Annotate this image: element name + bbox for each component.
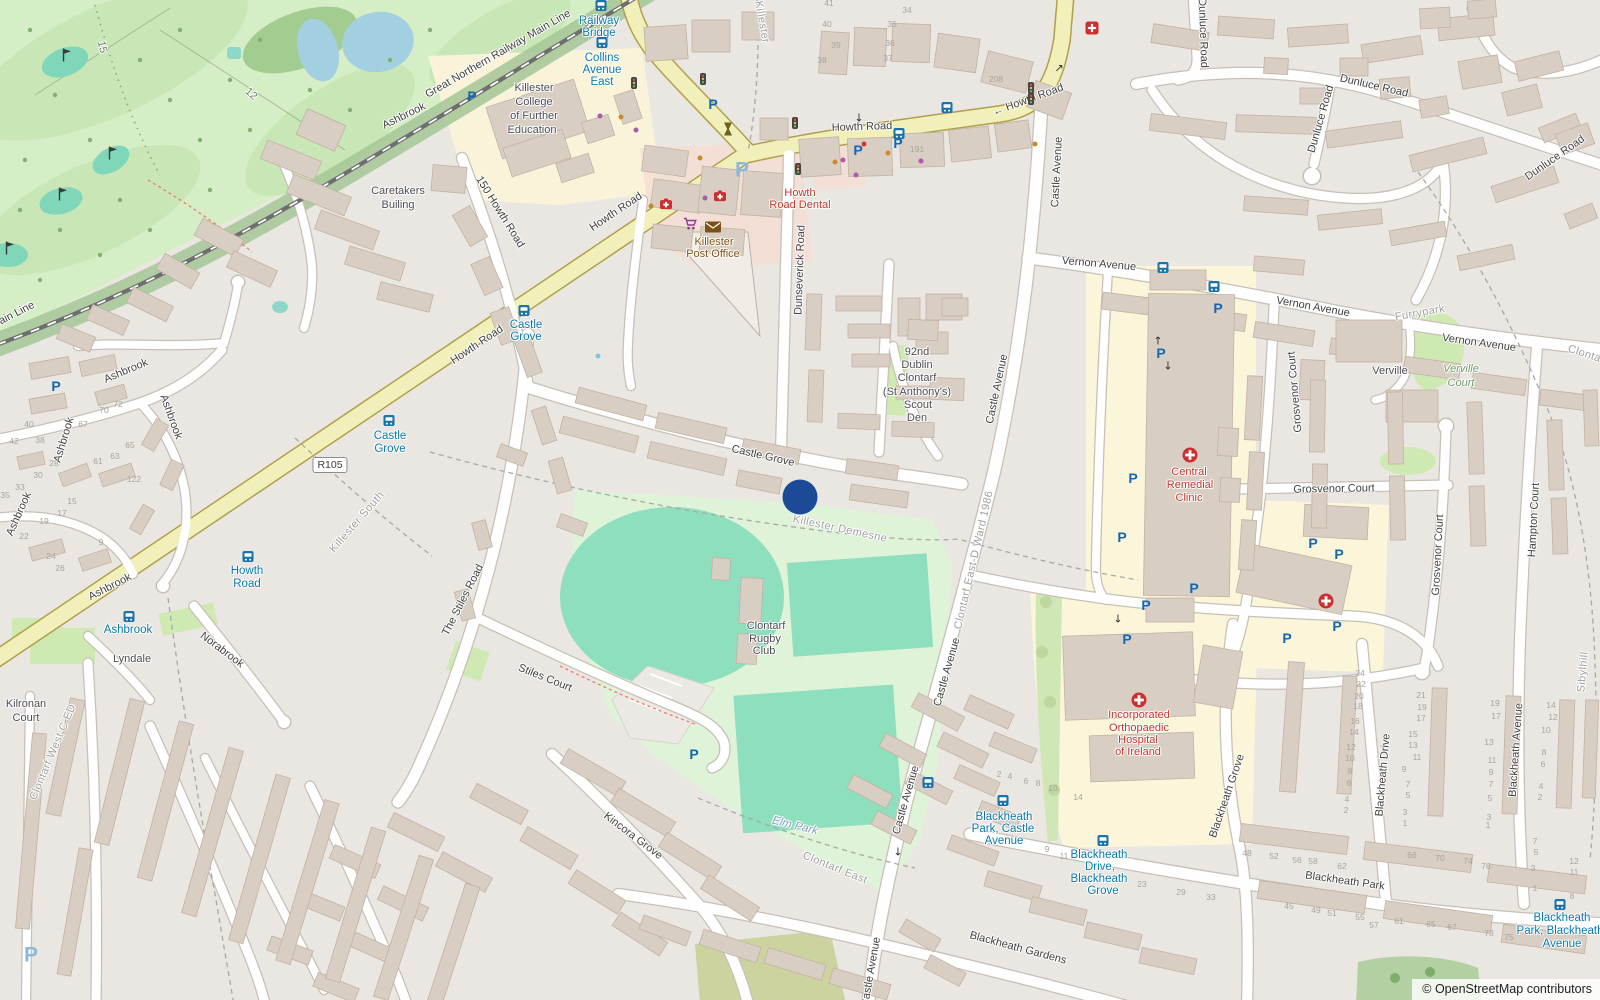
transit-stop-label: Avenue bbox=[985, 835, 1024, 847]
medical-label: Clinic bbox=[1176, 492, 1203, 504]
house-number: 17 bbox=[1416, 713, 1425, 723]
parking-icon: P bbox=[1117, 530, 1126, 544]
medical-label: Central bbox=[1171, 466, 1206, 478]
post-office-icon bbox=[705, 222, 721, 233]
street-label: Dunluce Road bbox=[1196, 0, 1210, 68]
house-number: 8 bbox=[1348, 766, 1353, 776]
house-number: 37 bbox=[883, 53, 892, 63]
house-number: 8 bbox=[1036, 778, 1041, 788]
house-number: 73 bbox=[1484, 928, 1493, 938]
house-number: 36 bbox=[885, 38, 894, 48]
bus-stop-icon bbox=[1158, 262, 1169, 274]
transit-stop-label: Blackheath bbox=[1071, 849, 1128, 861]
traffic-signal-icon bbox=[1028, 82, 1034, 94]
transit-stop-label: Avenue bbox=[583, 64, 622, 76]
house-number: 63 bbox=[110, 451, 119, 461]
house-number: 10 bbox=[1345, 753, 1354, 763]
place-label: Dublin bbox=[901, 359, 932, 371]
bus-stop-icon bbox=[998, 795, 1009, 807]
house-number: 22 bbox=[1356, 679, 1365, 689]
medical-label: Incorporated bbox=[1108, 709, 1170, 721]
house-number: 58 bbox=[1308, 856, 1317, 866]
hospital-cross-icon bbox=[1131, 692, 1147, 708]
boundary-label: Sibylhill bbox=[1575, 651, 1591, 693]
transit-stop-label: Park, Blackheath bbox=[1517, 925, 1600, 937]
street-label: Dunluce Road bbox=[1523, 133, 1587, 183]
house-number: 35 bbox=[0, 490, 9, 500]
poi-dot-icon bbox=[619, 115, 624, 120]
place-label: College bbox=[515, 96, 552, 108]
boundary-label: Clontarf East bbox=[801, 850, 869, 887]
boundary-label: Clontarf East-D Ward 1986 bbox=[952, 490, 996, 631]
street-label: Blackheath Park bbox=[1305, 869, 1386, 892]
house-number: 7 bbox=[1533, 836, 1538, 846]
house-number: 1 bbox=[1486, 820, 1491, 830]
poi-dot-icon bbox=[634, 128, 639, 133]
house-number: 70 bbox=[1435, 853, 1444, 863]
first-aid-icon bbox=[714, 191, 726, 202]
street-label: Grosvenor Court bbox=[1293, 482, 1375, 495]
house-number: 33 bbox=[1206, 892, 1215, 902]
place-label: Caretakers bbox=[371, 185, 425, 197]
supermarket-icon bbox=[683, 218, 697, 231]
oneway-arrow-icon: ↓ bbox=[1163, 361, 1172, 372]
street-label: Ashbrook bbox=[380, 100, 427, 131]
poi-dot-icon bbox=[833, 160, 838, 165]
street-label: Ashbrook bbox=[102, 356, 149, 385]
house-number: 30 bbox=[33, 470, 42, 480]
street-label: Howth Road bbox=[588, 190, 645, 234]
poi-dot-icon bbox=[886, 151, 891, 156]
boundary-label: Killester Demesne bbox=[792, 513, 888, 545]
parking-area-icon: P bbox=[24, 945, 38, 966]
transit-stop-label: Castle bbox=[374, 430, 407, 442]
house-number: 15 bbox=[1408, 729, 1417, 739]
transit-stop-label: Blackheath bbox=[1071, 873, 1128, 885]
house-number: 13 bbox=[1484, 737, 1493, 747]
house-number: 24 bbox=[46, 551, 55, 561]
poi-dot-icon bbox=[854, 173, 859, 178]
house-number: 2 bbox=[1538, 792, 1543, 802]
house-number: 67 bbox=[78, 419, 87, 429]
oneway-arrow-icon: ↓ bbox=[893, 847, 902, 858]
bus-stop-icon bbox=[1555, 899, 1566, 911]
attribution-copyright: © bbox=[1422, 982, 1431, 996]
house-number: 14 bbox=[1546, 700, 1555, 710]
street-label: Howth Road bbox=[449, 323, 506, 367]
street-label: Grosvenor Court bbox=[1430, 514, 1446, 596]
park-label: Elm Park bbox=[771, 815, 819, 838]
parking-icon: P bbox=[689, 747, 698, 761]
house-number: 40 bbox=[822, 19, 831, 29]
transit-stop-label: Drive, bbox=[1085, 861, 1115, 873]
place-label: Kilronan bbox=[6, 698, 46, 710]
house-number: 65 bbox=[1426, 919, 1435, 929]
house-number: 4 bbox=[1539, 781, 1544, 791]
medical-label: Howth bbox=[784, 187, 815, 199]
house-number: 10 bbox=[1541, 725, 1550, 735]
house-number: 38 bbox=[35, 435, 44, 445]
house-number: 62 bbox=[1337, 861, 1346, 871]
house-number: 4 bbox=[1008, 771, 1013, 781]
house-number: 42 bbox=[9, 436, 18, 446]
place-label: Verville bbox=[1372, 365, 1407, 377]
hospital-cross-icon bbox=[1182, 447, 1198, 463]
house-number: 66 bbox=[1407, 850, 1416, 860]
house-number: 9 bbox=[1489, 767, 1494, 777]
parking-icon: P bbox=[1213, 301, 1222, 315]
house-number: 3 bbox=[1403, 807, 1408, 817]
poi-dot-icon bbox=[1033, 142, 1038, 147]
oneway-arrow-icon: ↓ bbox=[854, 113, 863, 124]
boundary-label: Clontarf West C ED bbox=[27, 702, 78, 801]
house-number: 38 bbox=[817, 55, 826, 65]
house-number: 70 bbox=[99, 405, 108, 415]
traffic-signal-icon bbox=[795, 163, 801, 175]
street-label: Kincora Grove bbox=[601, 810, 664, 862]
house-number: 56 bbox=[1292, 855, 1301, 865]
house-number: 65 bbox=[125, 440, 134, 450]
street-label: Hampton Court bbox=[1526, 482, 1542, 557]
street-label: Dunluce Road bbox=[1306, 84, 1337, 154]
house-number: 191 bbox=[910, 144, 924, 154]
transit-stop-label: Railway bbox=[579, 15, 619, 27]
street-label: Blackheath Grove bbox=[1207, 753, 1247, 840]
traffic-signal-icon bbox=[700, 73, 706, 85]
street-label: Castle Grove bbox=[730, 443, 795, 469]
place-label: Clontarf bbox=[898, 372, 937, 384]
house-number: 41 bbox=[824, 0, 833, 8]
bus-stop-icon bbox=[243, 551, 254, 563]
house-number: 10 bbox=[1048, 783, 1057, 793]
poi-dot-icon bbox=[919, 159, 924, 164]
street-label: Vernon Avenue bbox=[1061, 255, 1136, 273]
house-number: 34 bbox=[902, 5, 911, 15]
street-label: Howth Road bbox=[832, 120, 893, 134]
house-number: 22 bbox=[19, 531, 28, 541]
poi-dot-icon bbox=[862, 142, 867, 147]
house-number: 12 bbox=[1548, 712, 1557, 722]
house-number: 1 bbox=[1403, 818, 1408, 828]
house-number: 12 bbox=[1569, 856, 1578, 866]
parking-icon: P bbox=[1282, 631, 1291, 645]
medical-label: Hospital bbox=[1118, 734, 1158, 746]
boundary-label: Furrypark bbox=[1394, 303, 1446, 324]
house-number: 17 bbox=[57, 508, 66, 518]
pharmacy-icon bbox=[1086, 22, 1099, 35]
transit-stop-label: Grove bbox=[1087, 885, 1118, 897]
oneway-arrow-icon: ↗ bbox=[1054, 63, 1063, 74]
transit-stop-label: Grove bbox=[374, 443, 405, 455]
first-aid-icon bbox=[660, 199, 672, 210]
house-number: 3 bbox=[1487, 812, 1492, 822]
house-number: 75 bbox=[1504, 932, 1513, 942]
place-label: Court bbox=[13, 712, 40, 724]
street-label: Great Northern Railway Main Line bbox=[423, 7, 572, 100]
house-number: 1 bbox=[1533, 883, 1538, 893]
boundary-label: Clontarf bbox=[1566, 343, 1600, 367]
house-number: 11 bbox=[1488, 755, 1497, 765]
place-label: of Further bbox=[510, 110, 558, 122]
house-number: 61 bbox=[1394, 916, 1403, 926]
parking-icon: P bbox=[1332, 619, 1341, 633]
transit-stop-label: Collins bbox=[585, 52, 620, 64]
house-number: 19 bbox=[1417, 702, 1426, 712]
medical-label: of Ireland bbox=[1115, 746, 1161, 758]
place-label: Clontarf bbox=[747, 620, 786, 632]
bus-stop-icon bbox=[384, 415, 395, 427]
parking-icon: P bbox=[51, 379, 60, 393]
transit-stop-label: Bridge bbox=[582, 27, 615, 39]
house-number: 21 bbox=[1416, 690, 1425, 700]
parking-icon: P bbox=[467, 89, 476, 103]
parking-icon: P bbox=[893, 136, 902, 150]
bus-stop-icon bbox=[124, 611, 135, 623]
street-label: Vernon Avenue bbox=[1275, 295, 1350, 320]
house-number: 9 bbox=[99, 537, 104, 547]
house-number: 7 bbox=[1489, 779, 1494, 789]
medical-label: Remedial bbox=[1167, 479, 1213, 491]
house-number: 5 bbox=[1488, 793, 1493, 803]
parking-icon: P bbox=[708, 97, 717, 111]
house-number: 16 bbox=[1350, 716, 1359, 726]
house-number: 26 bbox=[55, 563, 64, 573]
hospital-cross-icon bbox=[1318, 593, 1334, 609]
street-label: Grosvenor Court bbox=[1285, 351, 1304, 433]
street-label: Ashbrook bbox=[87, 571, 134, 603]
house-number: 19 bbox=[1490, 698, 1499, 708]
transit-stop-label: Grove bbox=[510, 331, 541, 343]
house-number: 18 bbox=[1353, 701, 1362, 711]
transit-stop-label: Blackheath bbox=[976, 811, 1033, 823]
house-number: 67 bbox=[1447, 922, 1456, 932]
poi-dot-icon bbox=[698, 156, 703, 161]
house-number: 74 bbox=[1463, 856, 1472, 866]
house-number: 5 bbox=[1406, 790, 1411, 800]
oneway-arrow-icon: ↓ bbox=[1113, 614, 1122, 625]
house-number: 52 bbox=[1269, 851, 1278, 861]
transit-stop-label: Castle bbox=[510, 319, 543, 331]
transit-stop-label: Blackheath bbox=[1534, 912, 1591, 924]
house-number: 14 bbox=[1349, 727, 1358, 737]
house-number: 5 bbox=[1534, 847, 1539, 857]
house-number: 7 bbox=[1406, 779, 1411, 789]
house-number: 17 bbox=[1491, 711, 1500, 721]
street-label: 150 Howth Road bbox=[473, 174, 527, 250]
bus-stop-icon bbox=[519, 305, 530, 317]
house-number: 61 bbox=[93, 456, 102, 466]
green-area-label: Court bbox=[1448, 377, 1475, 389]
attribution-suffix: contributors bbox=[1527, 982, 1592, 996]
house-number: 49 bbox=[1311, 905, 1320, 915]
parking-icon: P bbox=[1141, 598, 1150, 612]
house-number: 72 bbox=[113, 399, 122, 409]
house-number: 8 bbox=[1542, 747, 1547, 757]
house-number: 28 bbox=[49, 458, 58, 468]
street-label: Great Northern Railway Main Line bbox=[0, 299, 37, 385]
golf-hole-number: 15 bbox=[95, 40, 109, 54]
street-label: Castle Avenue bbox=[931, 636, 962, 707]
house-number: 13 bbox=[1408, 740, 1417, 750]
street-label: Castle Avenue bbox=[859, 936, 883, 1000]
poi-dot-icon bbox=[598, 114, 603, 119]
street-label: ← Howth Road bbox=[991, 82, 1065, 119]
house-number: 11 bbox=[1413, 752, 1422, 762]
house-number: 6 bbox=[1347, 778, 1352, 788]
house-number: 3 bbox=[1531, 863, 1536, 873]
house-number: 11 bbox=[1570, 867, 1579, 877]
house-number: 9 bbox=[1045, 844, 1050, 854]
traffic-signal-icon bbox=[631, 77, 637, 89]
house-number: 24 bbox=[1355, 668, 1364, 678]
house-number: 14 bbox=[1073, 792, 1082, 802]
post-office-label: Post Office bbox=[686, 248, 740, 260]
golf-flag-icon bbox=[108, 147, 118, 160]
golf-hole-number: 12 bbox=[242, 85, 259, 102]
place-label: Scout bbox=[904, 399, 932, 411]
transit-stop-label: Howth bbox=[231, 565, 264, 577]
street-label: Blackheath Avenue bbox=[1507, 703, 1526, 798]
house-number: 2 bbox=[997, 769, 1002, 779]
house-number: 8 bbox=[1570, 891, 1575, 901]
place-label: Rugby bbox=[749, 633, 781, 645]
house-number: 4 bbox=[1345, 794, 1350, 804]
bus-stop-icon bbox=[597, 37, 608, 49]
oneway-arrow-icon: ↑ bbox=[1153, 336, 1162, 347]
medical-label: Road Dental bbox=[769, 199, 830, 211]
bus-stop-icon bbox=[942, 102, 953, 114]
house-number: 57 bbox=[1369, 920, 1378, 930]
house-number: 20 bbox=[1354, 691, 1363, 701]
route-shield: R105 bbox=[312, 457, 347, 473]
transit-stop-label: Ashbrook bbox=[104, 624, 153, 636]
traffic-signal-icon bbox=[1028, 93, 1034, 105]
house-number: 23 bbox=[1137, 879, 1146, 889]
street-label: Blackheath Drive bbox=[1373, 733, 1392, 817]
house-number: 48 bbox=[1242, 848, 1251, 858]
street-label: Castle Avenue bbox=[1049, 136, 1065, 207]
house-number: 6 bbox=[1024, 776, 1029, 786]
street-label: Ashbrook bbox=[51, 416, 76, 464]
map-canvas[interactable]: Great Northern Railway Main LineGreat No… bbox=[0, 0, 1600, 1000]
golf-flag-icon bbox=[62, 49, 72, 62]
boundary-label: Killester South bbox=[327, 489, 387, 555]
street-label: Dunseverick Road bbox=[792, 225, 807, 315]
poi-dot-icon bbox=[841, 158, 846, 163]
post-office-label: Killester bbox=[694, 236, 733, 248]
golf-flag-icon bbox=[5, 242, 15, 255]
bus-stop-icon bbox=[1209, 281, 1220, 293]
house-number: 6 bbox=[1541, 759, 1546, 769]
house-number: 51 bbox=[1327, 908, 1336, 918]
parking-icon: P bbox=[1189, 581, 1198, 595]
house-number: 12 bbox=[1346, 742, 1355, 752]
place-label: Killester bbox=[514, 82, 553, 94]
street-label: Ashbrook bbox=[157, 393, 184, 441]
transit-stop-label: East bbox=[590, 76, 613, 88]
street-label: Castle Avenue bbox=[890, 764, 921, 835]
transit-stop-label: Road bbox=[233, 578, 261, 590]
house-number: 55 bbox=[1355, 912, 1364, 922]
street-label: Norabrook bbox=[198, 630, 246, 670]
street-label: Vernon Avenue bbox=[1441, 332, 1516, 354]
parking-icon: P bbox=[1308, 536, 1317, 550]
location-marker bbox=[783, 480, 818, 515]
level-crossing-icon bbox=[723, 122, 733, 137]
house-number: 33 bbox=[15, 482, 24, 492]
place-label: Builing bbox=[381, 199, 414, 211]
house-number: 2 bbox=[1344, 805, 1349, 815]
bus-stop-icon bbox=[1098, 835, 1109, 847]
bus-stop-icon bbox=[894, 128, 905, 140]
poi-dot-icon bbox=[703, 196, 708, 201]
house-number: 11 bbox=[1060, 851, 1069, 861]
traffic-signal-icon bbox=[792, 117, 798, 129]
parking-icon: P bbox=[1128, 471, 1137, 485]
house-number: 40 bbox=[24, 419, 33, 429]
place-label: Education bbox=[508, 124, 557, 136]
poi-dot-icon bbox=[649, 204, 654, 209]
place-label: Den bbox=[907, 412, 927, 424]
place-label: Lyndale bbox=[113, 653, 151, 665]
boundary-label: Killester bbox=[752, 0, 771, 44]
golf-flag-icon bbox=[58, 188, 68, 201]
place-label: Club bbox=[753, 645, 776, 657]
parking-icon: P bbox=[1122, 632, 1131, 646]
house-number: 208 bbox=[989, 74, 1003, 84]
house-number: 29 bbox=[1176, 887, 1185, 897]
transit-stop-label: Park, Castle bbox=[972, 823, 1035, 835]
house-number: 76 bbox=[1481, 861, 1490, 871]
medical-label: Orthopaedic bbox=[1109, 722, 1169, 734]
poi-dot-icon bbox=[596, 354, 601, 359]
house-number: 9 bbox=[1402, 764, 1407, 774]
street-label: Castle Avenue bbox=[984, 353, 1010, 425]
street-label: Ashbrook bbox=[4, 490, 34, 537]
parking-icon: P bbox=[853, 143, 862, 157]
transit-stop-label: Avenue bbox=[1543, 938, 1582, 950]
street-label: Stiles Court bbox=[516, 662, 573, 694]
house-number: 122 bbox=[127, 474, 141, 484]
house-number: 35 bbox=[887, 19, 896, 29]
street-label: Dunluce Road bbox=[1339, 72, 1410, 99]
green-area-label: Verville bbox=[1443, 363, 1479, 375]
street-label: The Stiles Road bbox=[440, 562, 486, 637]
house-number: 15 bbox=[67, 496, 76, 506]
attribution-osm-link[interactable]: OpenStreetMap bbox=[1435, 982, 1523, 996]
parking-icon: P bbox=[1156, 346, 1165, 360]
parking-icon: P bbox=[1334, 547, 1343, 561]
place-label: (St Anthony's) bbox=[883, 386, 951, 398]
house-number: 45 bbox=[1284, 901, 1293, 911]
house-number: 39 bbox=[831, 40, 840, 50]
house-number: 19 bbox=[39, 516, 48, 526]
bus-stop-icon bbox=[923, 777, 934, 789]
place-label: 92nd bbox=[905, 346, 929, 358]
attribution: © OpenStreetMap contributors bbox=[1412, 979, 1600, 1000]
parking-area-icon: P bbox=[735, 160, 749, 181]
street-label: Blackheath Gardens bbox=[968, 929, 1067, 966]
bus-stop-icon bbox=[596, 0, 607, 12]
